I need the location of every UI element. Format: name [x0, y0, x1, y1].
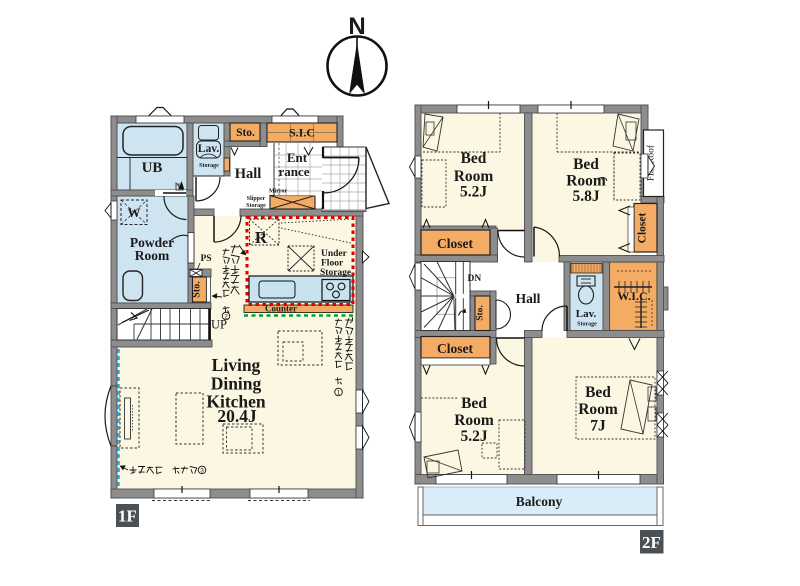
svg-text:Lav.: Lav.	[576, 308, 597, 320]
svg-text:Balcony: Balcony	[516, 494, 563, 509]
svg-text:5.8J: 5.8J	[572, 188, 599, 205]
svg-text:7J: 7J	[590, 418, 606, 435]
svg-text:Under: Under	[321, 249, 348, 259]
svg-text:Bed: Bed	[461, 150, 487, 167]
svg-text:Mirror: Mirror	[269, 189, 288, 195]
svg-text:Living: Living	[212, 355, 261, 375]
svg-text:W.I.C.: W.I.C.	[617, 289, 650, 303]
svg-text:W: W	[128, 205, 141, 220]
svg-text:Hall: Hall	[516, 291, 541, 306]
svg-text:Slipper: Slipper	[247, 196, 266, 202]
svg-text:S.I.C: S.I.C	[289, 126, 315, 140]
svg-text:Hall: Hall	[235, 166, 262, 182]
svg-text:Closet: Closet	[437, 341, 473, 356]
svg-text:Sto.: Sto.	[236, 127, 255, 139]
svg-text:Lav.: Lav.	[198, 143, 220, 155]
svg-text:Closet: Closet	[637, 213, 649, 244]
svg-text:Storage: Storage	[320, 268, 351, 278]
svg-text:Dining: Dining	[211, 374, 262, 394]
svg-text:3: 3	[200, 468, 204, 475]
svg-text:1: 1	[337, 390, 341, 397]
svg-text:UB: UB	[142, 160, 163, 176]
svg-text:1F: 1F	[118, 507, 137, 526]
svg-text:Storage: Storage	[577, 322, 597, 328]
svg-text:PS: PS	[200, 254, 211, 264]
svg-text:Bed: Bed	[461, 395, 487, 412]
svg-text:rance: rance	[278, 164, 309, 179]
svg-text:5.2J: 5.2J	[460, 428, 487, 445]
svg-text:R: R	[255, 228, 268, 247]
svg-text:DN: DN	[468, 274, 482, 284]
svg-text:Room: Room	[454, 168, 494, 185]
svg-text:N: N	[348, 13, 365, 40]
svg-text:Sto.: Sto.	[476, 305, 486, 321]
svg-text:Ent: Ent	[287, 150, 308, 165]
svg-text:Storage: Storage	[246, 203, 266, 209]
svg-text:Room: Room	[578, 401, 618, 418]
svg-text:Closet: Closet	[437, 236, 473, 251]
svg-text:2: 2	[224, 314, 228, 321]
svg-text:Storage: Storage	[199, 163, 219, 169]
svg-text:Room: Room	[566, 173, 606, 190]
svg-text:5.2J: 5.2J	[460, 184, 487, 201]
svg-text:Bed: Bed	[573, 156, 599, 173]
svg-text:Room: Room	[135, 248, 170, 263]
svg-text:Floor: Floor	[321, 259, 344, 269]
svg-text:Bed: Bed	[585, 384, 611, 401]
svg-text:Sto.: Sto.	[192, 281, 203, 298]
svg-text:Room: Room	[454, 412, 494, 429]
svg-text:20.4J: 20.4J	[217, 406, 257, 426]
svg-text:2F: 2F	[642, 533, 661, 552]
